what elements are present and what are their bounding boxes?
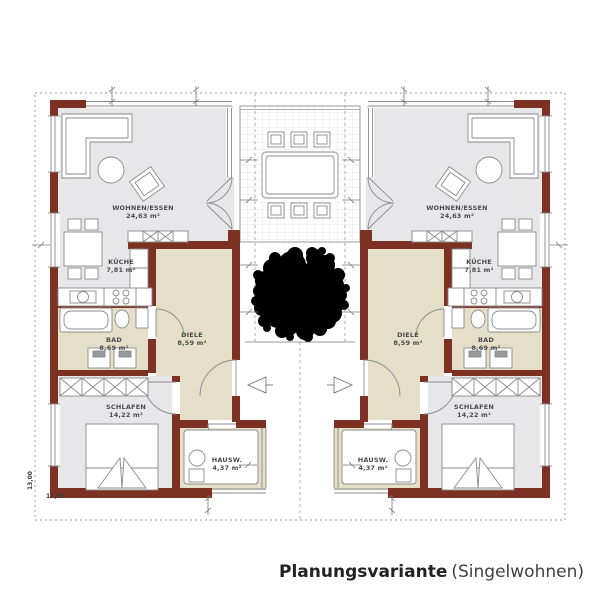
terrace-table <box>262 132 338 218</box>
room-label-schlafen-right: SCHLAFEN14,22 m² <box>454 403 494 419</box>
room-label-wohnen-right: WOHNEN/ESSEN24,63 m² <box>426 204 488 220</box>
unit-left <box>32 86 273 515</box>
caption-subtitle: (Singelwohnen) <box>451 562 584 582</box>
dimension-total-width: 17,99 <box>46 493 65 500</box>
room-label-diele-right: DIELE8,59 m² <box>393 331 422 347</box>
room-label-bad-left: BAD8,69 m² <box>99 336 128 352</box>
floor-plan-page: WOHNEN/ESSEN24,63 m² KÜCHE7,81 m² BAD8,6… <box>0 0 600 600</box>
room-label-hausw-right: HAUSW.4,37 m² <box>358 456 389 472</box>
tree-icon <box>251 247 350 342</box>
unit-right <box>327 86 568 515</box>
room-label-kueche-left: KÜCHE7,81 m² <box>106 258 135 274</box>
terrace <box>240 106 360 242</box>
room-label-schlafen-left: SCHLAFEN14,22 m² <box>106 403 146 419</box>
plan-caption: Planungsvariante(Singelwohnen) <box>279 562 584 582</box>
room-label-bad-right: BAD8,69 m² <box>471 336 500 352</box>
room-label-hausw-left: HAUSW.4,37 m² <box>212 456 243 472</box>
caption-title: Planungsvariante <box>279 562 447 582</box>
room-label-wohnen-left: WOHNEN/ESSEN24,63 m² <box>112 204 174 220</box>
room-label-diele-left: DIELE8,59 m² <box>177 331 206 347</box>
room-label-kueche-right: KÜCHE7,81 m² <box>464 258 493 274</box>
dimension-total-height: 13,00 <box>27 471 34 490</box>
floor-plan-drawing <box>0 0 600 600</box>
